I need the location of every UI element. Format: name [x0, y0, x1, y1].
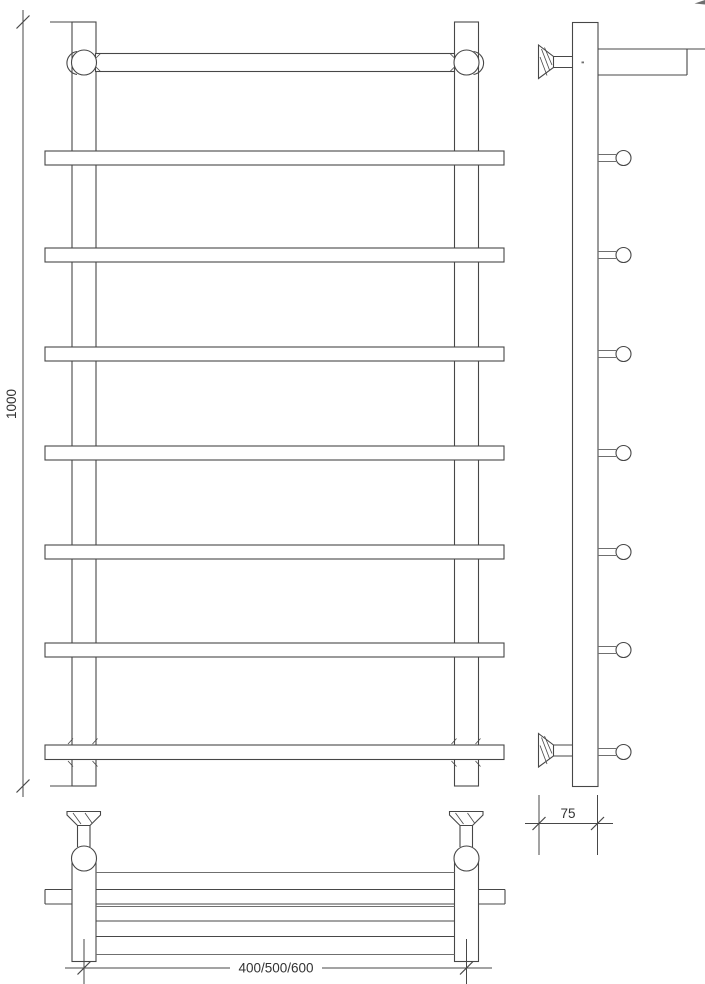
drawing-canvas: 1000: [0, 0, 705, 984]
top-towel-bar: [96, 54, 455, 72]
rung-stub-plan-right: [479, 890, 506, 905]
rung-end-stub-2: [598, 248, 631, 263]
wall-bracket-plan-left: [67, 812, 101, 826]
rung-end-stub-7: [598, 745, 631, 760]
towel-rung-5: [45, 545, 504, 559]
height-dimension-label: 1000: [4, 389, 19, 419]
side-view: 75: [525, 0, 705, 855]
towel-rung-1: [45, 151, 504, 165]
towel-rung-3: [45, 347, 504, 361]
rung-end-stubs: [598, 151, 631, 760]
left-post: [72, 22, 96, 786]
rung-end-stub-1: [598, 151, 631, 166]
front-view: 1000: [4, 10, 504, 797]
page-corner-mark: [695, 0, 705, 5]
right-post: [455, 22, 479, 786]
towel-rung-4: [45, 446, 504, 460]
towel-rung-2: [45, 248, 504, 262]
rung-end-stub-3: [598, 347, 631, 362]
rung-stub-plan-left: [45, 890, 72, 905]
screw-center-mark: [582, 62, 585, 64]
ball-joint-right: [454, 50, 479, 75]
top-bar-arm-side: [598, 49, 705, 75]
post-plan-left: [72, 846, 97, 871]
towel-rung-7: [45, 745, 504, 760]
bars-plan: [96, 873, 455, 955]
rung-end-stub-5: [598, 545, 631, 560]
wall-bracket-plan-right: [450, 812, 484, 826]
side-post: [573, 23, 599, 787]
ball-joint-left: [72, 50, 97, 75]
width-dimension-label: 400/500/600: [238, 961, 313, 976]
rung-end-stub-6: [598, 643, 631, 658]
towel-rung-6: [45, 643, 504, 657]
depth-dimension-label: 75: [560, 806, 575, 821]
bracket-stem-plan-right: [460, 826, 473, 848]
bracket-stem-plan-left: [78, 826, 91, 848]
bottom-view: 400/500/600: [45, 812, 505, 984]
towel-rail-technical-drawing: 1000: [0, 0, 705, 984]
rung-end-stub-4: [598, 446, 631, 461]
depth-dimension: 75: [525, 795, 613, 855]
wall-bracket-bottom: [539, 734, 573, 768]
width-dimension: 400/500/600: [65, 939, 492, 984]
height-dimension: 1000: [4, 10, 30, 797]
post-plan-right: [454, 846, 479, 871]
